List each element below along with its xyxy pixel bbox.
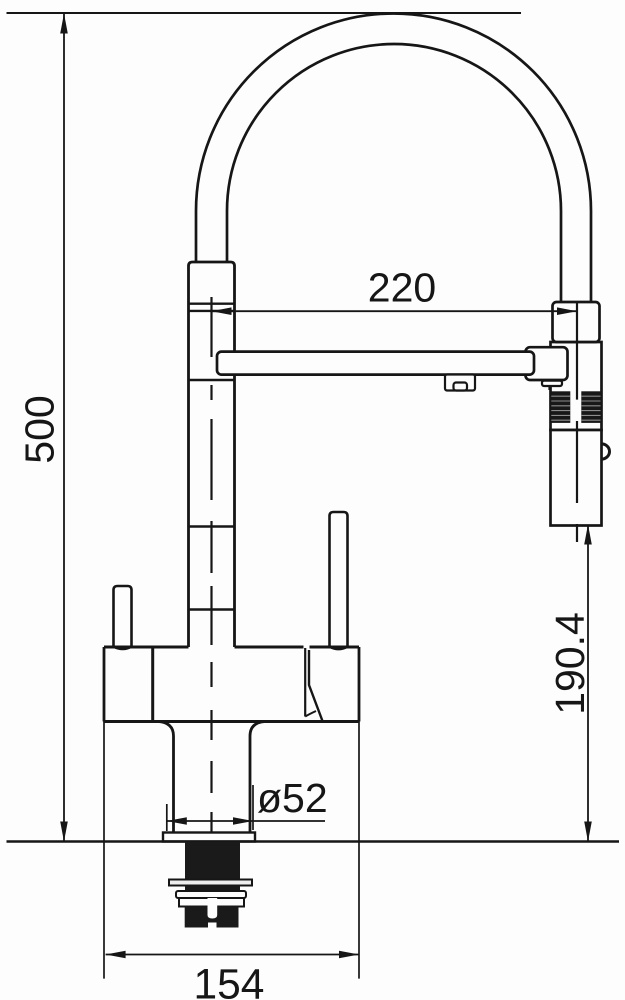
svg-text:220: 220: [368, 265, 436, 311]
svg-text:190.4: 190.4: [547, 612, 593, 715]
svg-text:154: 154: [194, 962, 265, 1000]
svg-text:ø52: ø52: [257, 775, 328, 821]
svg-text:500: 500: [17, 395, 63, 463]
